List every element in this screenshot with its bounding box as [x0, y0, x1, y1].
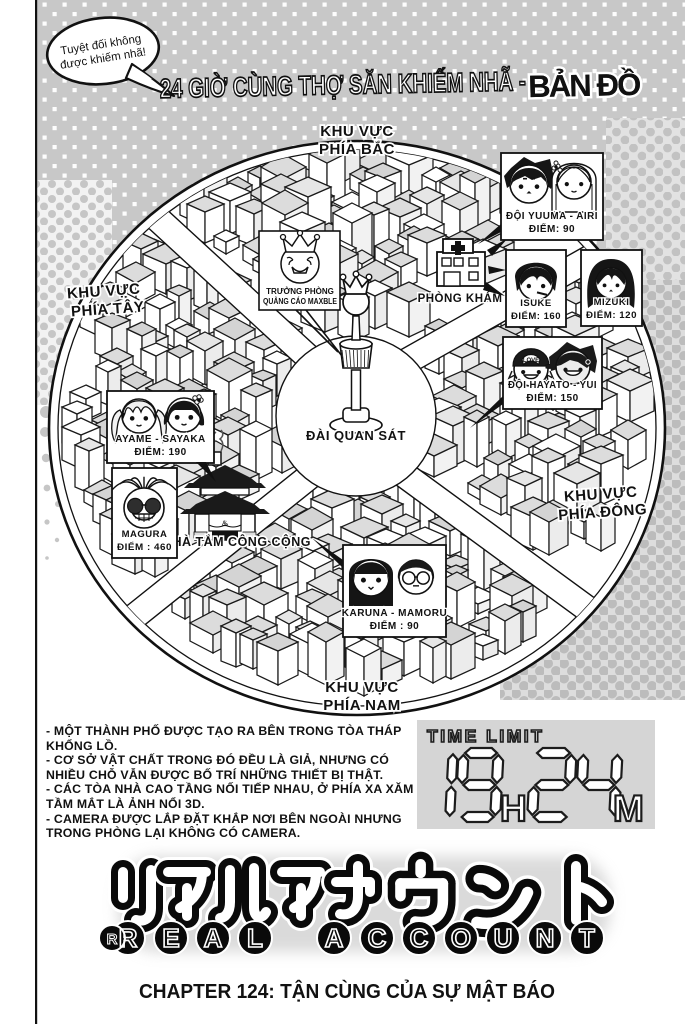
svg-text:KHU VỰC: KHU VỰC [320, 123, 393, 140]
svg-text:C: C [368, 923, 387, 953]
svg-text:C: C [410, 923, 429, 953]
svg-text:ĐÀI QUAN SÁT: ĐÀI QUAN SÁT [306, 428, 406, 443]
svg-text:A: A [325, 923, 344, 953]
svg-text:A: A [204, 923, 223, 953]
svg-text:NHIỀU CHỖ VẪN ĐƯỢC BỐ TRÍ NHỮN: NHIỀU CHỖ VẪN ĐƯỢC BỐ TRÍ NHỮNG THIẾT BỊ… [46, 767, 383, 782]
svg-text:- MỘT THÀNH PHỐ ĐƯỢC TẠO RA BÊ: - MỘT THÀNH PHỐ ĐƯỢC TẠO RA BÊN TRONG TÒ… [46, 723, 402, 738]
svg-text:ISUKE: ISUKE [520, 298, 552, 309]
svg-text:O: O [451, 923, 471, 953]
svg-text:KARUNA - MAMORU: KARUNA - MAMORU [342, 608, 447, 619]
svg-text:ĐIỂM: 150: ĐIỂM: 150 [526, 391, 578, 404]
svg-text:R: R [107, 931, 118, 948]
svg-text:H: H [500, 788, 527, 829]
svg-text:PHÒNG KHÁM: PHÒNG KHÁM [418, 292, 503, 305]
svg-text:TIME LIMIT: TIME LIMIT [427, 726, 544, 746]
svg-text:BẢN ĐỒ: BẢN ĐỒ [528, 66, 642, 104]
svg-text:ĐIỂM: 90: ĐIỂM: 90 [529, 222, 575, 235]
svg-text:TẦM MẮT LÀ ẢNH NỔI 3D.: TẦM MẮT LÀ ẢNH NỔI 3D. [46, 796, 205, 811]
svg-text:L: L [247, 923, 263, 953]
svg-text:PHÍA BẮC: PHÍA BẮC [319, 140, 395, 158]
svg-text:ĐIỂM: 190: ĐIỂM: 190 [134, 445, 186, 458]
svg-text:R: R [119, 923, 138, 953]
svg-text:TRONG PHÒNG LẠI KHÔNG CÓ CAMER: TRONG PHÒNG LẠI KHÔNG CÓ CAMERA. [46, 825, 300, 840]
svg-text:ĐỘI HAYATO - YUI: ĐỘI HAYATO - YUI [508, 378, 597, 391]
svg-text:ĐIỂM : 460: ĐIỂM : 460 [117, 541, 172, 553]
svg-text:- CƠ SỞ VẬT CHẤT TRONG ĐÓ ĐỀU: - CƠ SỞ VẬT CHẤT TRONG ĐÓ ĐỀU LÀ GIẢ, NH… [46, 752, 389, 767]
svg-text:TRƯỞNG PHÒNG: TRƯỞNG PHÒNG [266, 287, 334, 296]
svg-text:AYAME - SAYAKA: AYAME - SAYAKA [115, 434, 206, 445]
svg-text:♨: ♨ [221, 519, 228, 528]
svg-text:ĐIỂM: 120: ĐIỂM: 120 [586, 309, 637, 321]
svg-text:KHỔNG LỒ.: KHỔNG LỒ. [46, 738, 117, 753]
svg-text:MAGURA: MAGURA [122, 529, 168, 540]
svg-text:- CAMERA ĐƯỢC LẮP ĐẶT KHẮP NƠI: - CAMERA ĐƯỢC LẮP ĐẶT KHẮP NƠI BÊN NGOÀI… [46, 811, 402, 826]
svg-text:QUẢNG CÁO MAXBLE: QUẢNG CÁO MAXBLE [263, 297, 338, 306]
svg-text:- CÁC TÒA NHÀ CAO TẦNG NỐI TIẾ: - CÁC TÒA NHÀ CAO TẦNG NỐI TIẾP NHAU, Ở … [46, 781, 414, 796]
svg-text:M: M [613, 788, 644, 829]
svg-text:MIZUKI: MIZUKI [594, 297, 630, 308]
svg-text:PHÍA NAM: PHÍA NAM [323, 697, 401, 714]
svg-text:LOVE: LOVE [523, 358, 539, 364]
svg-text:NHÀ TẮM CÔNG CỘNG: NHÀ TẮM CÔNG CỘNG [163, 534, 311, 549]
svg-text:CHAPTER 124: TẬN CÙNG CỦA SỰ M: CHAPTER 124: TẬN CÙNG CỦA SỰ MẬT BÁO [139, 979, 555, 1003]
svg-text:N: N [536, 923, 555, 953]
svg-text:T: T [579, 923, 595, 953]
svg-text:KHU VỰC: KHU VỰC [325, 679, 398, 696]
svg-text:U: U [494, 923, 513, 953]
svg-text:ĐIỂM : 90: ĐIỂM : 90 [370, 619, 420, 632]
svg-text:ĐỘI YUUMA - AIRI: ĐỘI YUUMA - AIRI [506, 209, 598, 222]
svg-text:ĐIỂM: 160: ĐIỂM: 160 [511, 310, 561, 322]
svg-text:E: E [162, 923, 179, 953]
